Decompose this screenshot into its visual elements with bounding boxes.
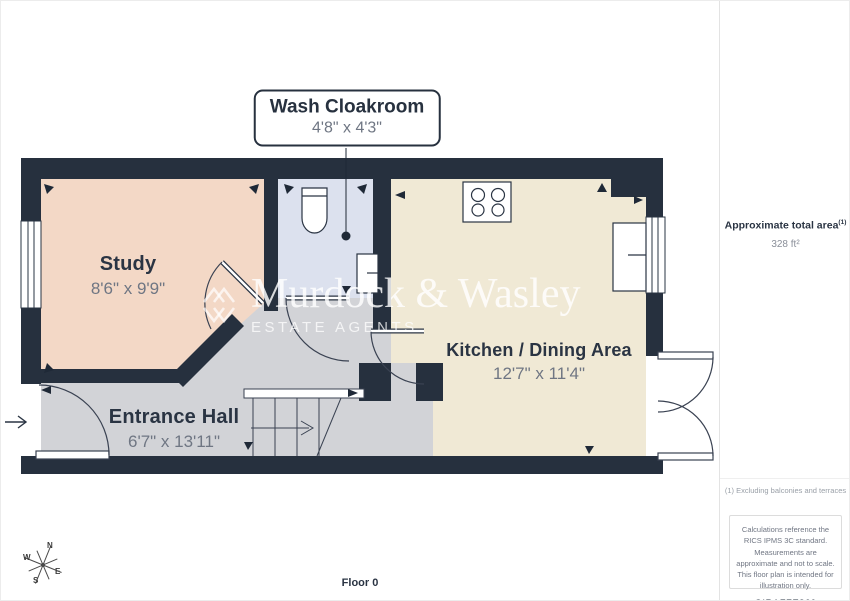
french-door-bottom-leaf xyxy=(658,453,713,460)
wall-hall-kitchen-right xyxy=(416,363,443,401)
sidebar-divider xyxy=(720,478,850,479)
floorplan-canvas: Murdock & Wasley ESTATE AGENTS Study 8'6… xyxy=(1,1,719,601)
compass-s: S xyxy=(33,576,39,585)
compass-icon: N W E S xyxy=(13,535,75,591)
cloakroom-point-icon xyxy=(342,232,351,241)
wall-study-cloakroom xyxy=(264,179,278,311)
compass-n: N xyxy=(47,541,53,550)
wall-top xyxy=(21,158,663,179)
floor-label: Floor 0 xyxy=(342,577,379,589)
kitchen-dining-label: Kitchen / Dining Area 12'7" x 11'4" xyxy=(446,340,632,384)
giraffe360-logo: GIRAFFE360 xyxy=(735,598,836,601)
disclaimer-box: Calculations reference the RICS IPMS 3C … xyxy=(729,515,842,589)
info-sidebar: Approximate total area(1) 328 ft² (1) Ex… xyxy=(719,1,850,601)
counter-unit-icon xyxy=(613,223,646,291)
wall-left-upper xyxy=(21,158,41,221)
disclaimer-text: Calculations reference the RICS IPMS 3C … xyxy=(735,524,836,592)
compass-e: E xyxy=(55,567,61,576)
window-study-icon xyxy=(21,221,41,308)
total-area-value: 328 ft² xyxy=(720,239,850,250)
french-door-top-arc xyxy=(658,357,713,412)
study-label: Study 8'6" x 9'9" xyxy=(91,253,165,299)
total-area-block: Approximate total area(1) 328 ft² xyxy=(720,219,850,250)
floorplan-page: Murdock & Wasley ESTATE AGENTS Study 8'6… xyxy=(0,0,850,601)
window-kitchen-icon xyxy=(646,217,665,293)
wall-bottom xyxy=(21,456,663,474)
total-area-title: Approximate total area(1) xyxy=(720,219,850,232)
wash-cloakroom-callout: Wash Cloakroom 4'8" x 4'3" xyxy=(254,90,441,147)
stove-icon xyxy=(463,182,511,222)
entry-arrow-icon xyxy=(5,416,26,428)
french-door-bottom-arc xyxy=(658,401,713,456)
toilet-icon xyxy=(302,188,327,233)
area-footnote: (1) Excluding balconies and terraces xyxy=(724,486,847,495)
wall-right-mid xyxy=(646,293,663,356)
french-door-top-leaf xyxy=(658,352,713,359)
entrance-hall-label: Entrance Hall 6'7" x 13'11" xyxy=(109,406,239,452)
front-door-leaf xyxy=(36,451,109,459)
footnote-marker: (1) xyxy=(838,219,846,226)
compass-w: W xyxy=(23,553,31,562)
